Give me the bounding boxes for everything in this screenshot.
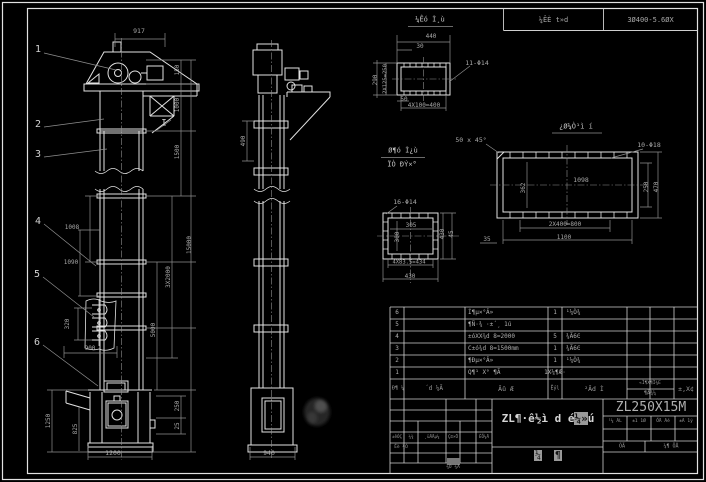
dim-label: 2X400=800 bbox=[549, 222, 582, 228]
header-power-cell: 3Ø400-5.6ØX bbox=[604, 9, 697, 31]
dim-label: 4X100=400 bbox=[408, 103, 441, 109]
bom-cell-no: 2 bbox=[395, 358, 399, 364]
bom-cell-qty: 5 bbox=[553, 334, 557, 340]
dim-label: 15000 bbox=[187, 236, 193, 254]
cad-drawing-sheet: ¼ÊÈ t»d 3Ø400-5.6ØX 123456I¼Êó Ì¸ùØ¶ó Ì¿… bbox=[0, 0, 706, 482]
dim-label: 250 bbox=[175, 401, 181, 412]
dim-label: ¼Ó ¼Ä bbox=[446, 466, 460, 471]
dim-label: 430 bbox=[405, 274, 416, 280]
dim-label: ¶Ä¾¼ bbox=[644, 392, 656, 397]
dim-label: ¼¶ ÖÅ bbox=[663, 445, 678, 450]
dim-label: ¼¾ bbox=[408, 435, 413, 439]
dim-label: ²Ãd Ì bbox=[584, 386, 604, 393]
bom-cell-material: ¾Ã6Ͼ bbox=[566, 334, 580, 340]
bom-cell-name: C±ó¾d 8=1500mm bbox=[468, 346, 519, 352]
product-title-tail: ú bbox=[588, 412, 595, 425]
bom-cell-qty: 1X¼¶Æ· bbox=[544, 370, 566, 376]
watermark-smudge bbox=[304, 398, 330, 426]
dim-label: 470 bbox=[654, 182, 660, 193]
product-title-main: ZL¶·ê½ì d é bbox=[502, 412, 575, 425]
dim-label: 1008 bbox=[65, 225, 79, 231]
bom-cell-name: ¶Ñ·¾ ·±´¸ 1ú bbox=[468, 322, 511, 328]
view-title-label: ÏÒ ĐÝ×° bbox=[387, 162, 417, 169]
dim-label: 825 bbox=[73, 424, 79, 435]
callout-label: 5 bbox=[34, 270, 40, 280]
dim-label: 1500 bbox=[175, 145, 181, 159]
drawing-linework bbox=[0, 0, 706, 482]
header-spec-cell: ¼ÊÈ t»d bbox=[504, 9, 603, 31]
sheet-type-label: ¼¶ bbox=[493, 450, 603, 461]
bom-cell-name: Q¶¹ X° ¶Ã bbox=[468, 370, 501, 376]
dim-label: 50 x 45° bbox=[455, 137, 486, 144]
bom-cell-qty: 1 bbox=[553, 346, 557, 352]
dim-label: ±1 1Ø bbox=[632, 420, 646, 425]
view-title-label: ¿Ø¼Ò¹ì í bbox=[559, 124, 593, 131]
dim-label: Éè ¼Ó bbox=[394, 446, 408, 451]
dim-label: 4X83.5=434 bbox=[392, 260, 425, 266]
dim-label: Đ¶ ¼ bbox=[392, 387, 404, 392]
dim-label: Ç©×Ö bbox=[448, 435, 458, 439]
dim-label: ÕÄ bbox=[619, 445, 625, 450]
dim-label: 320 bbox=[65, 319, 71, 330]
view-title-label: ¼Êó Ì¸ù bbox=[415, 17, 445, 24]
dim-label: 5000 bbox=[151, 323, 157, 337]
dim-label: 50 bbox=[400, 97, 407, 103]
dim-label: 1090 bbox=[64, 260, 78, 266]
dim-label: Ãû Æ bbox=[498, 386, 514, 393]
dim-label: 150 bbox=[175, 65, 181, 76]
dimension-lines bbox=[43, 27, 662, 461]
dim-label: 25 bbox=[175, 422, 181, 429]
bom-cell-qty: 1 bbox=[553, 358, 557, 364]
dim-label: Êýl bbox=[550, 387, 559, 392]
bom-cell-material: ¹¼Ò¾ bbox=[566, 310, 580, 316]
bom-cell-material: ¹¼Ò¾ bbox=[566, 358, 580, 364]
dim-label: ±êÓÇ bbox=[392, 435, 402, 439]
dim-label: 1200 bbox=[105, 450, 121, 457]
dim-label: «Ì¶X¶Ì¾E bbox=[639, 382, 661, 387]
dim-label: 362 bbox=[521, 183, 527, 194]
bom-cell-material: ¾Ã6Ͼ bbox=[566, 346, 580, 352]
dim-label: 1250 bbox=[46, 414, 52, 428]
product-title-highlight: ¼» bbox=[574, 412, 587, 425]
bom-cell-no: 4 bbox=[395, 334, 399, 340]
sheet-char-1: ¼ bbox=[534, 450, 542, 461]
product-title: ZL¶·ê½ì d é¼»ú bbox=[493, 412, 603, 426]
dim-label: 11-Φ14 bbox=[465, 60, 488, 67]
dim-label: ÕÄ Ãé bbox=[656, 420, 670, 425]
dim-label: ¹¼ ÃL bbox=[608, 420, 622, 425]
dim-label: 900 bbox=[85, 346, 96, 352]
dim-label: 940 bbox=[263, 450, 275, 457]
callout-label: I bbox=[161, 120, 166, 129]
bom-cell-no: 5 bbox=[395, 322, 399, 328]
callout-label: 1 bbox=[35, 45, 41, 55]
sheet-char-2: ¶ bbox=[554, 450, 562, 461]
dim-label: 917 bbox=[133, 28, 145, 35]
bom-cell-name: Í¶µ×°Â» bbox=[468, 310, 493, 316]
dim-label: 1000 bbox=[175, 98, 181, 112]
dim-label: 440 bbox=[426, 34, 437, 40]
bom-cell-name: ¶Ðµ×°Â» bbox=[468, 358, 493, 364]
callout-label: 4 bbox=[35, 217, 41, 227]
dim-label: 1098 bbox=[573, 177, 589, 184]
dim-label: 35 bbox=[483, 237, 490, 243]
dim-label: 290 bbox=[373, 75, 379, 86]
dim-label: 30 bbox=[416, 44, 423, 50]
bom-cell-name: ±óXX¾d 8=2000 bbox=[468, 334, 515, 340]
bom-cell-no: 6 bbox=[395, 310, 399, 316]
dim-label: ´d ¼Ã bbox=[425, 386, 443, 392]
bom-cell-no: 3 bbox=[395, 346, 399, 352]
dim-label: 305 bbox=[406, 223, 417, 229]
bom-cell-qty: 1 bbox=[553, 310, 557, 316]
dim-label: 490 bbox=[241, 136, 247, 147]
dim-label: ¸üÄÄμ¼ bbox=[424, 435, 439, 439]
view-title-label: Ø¶ó Ì¿ù bbox=[388, 148, 418, 155]
dim-label: 250 bbox=[644, 182, 650, 193]
bom-cell-no: 1 bbox=[395, 370, 399, 376]
dim-label: 3X2000 bbox=[166, 266, 172, 288]
dim-label: 300 bbox=[395, 232, 401, 243]
callout-label: 3 bbox=[35, 150, 41, 160]
dim-label: 430 bbox=[440, 229, 446, 240]
dim-label: 10-Φ18 bbox=[637, 142, 660, 149]
callout-label: 6 bbox=[34, 338, 40, 348]
dim-label: 45 bbox=[449, 230, 455, 237]
dim-label: 16-Φ14 bbox=[393, 199, 416, 206]
dim-label: 2X125=250 bbox=[383, 64, 389, 94]
callout-label: 2 bbox=[35, 120, 41, 130]
model-number: ZL250X15M bbox=[604, 400, 698, 416]
dim-label: ±Ã 1ý bbox=[679, 420, 693, 425]
dim-label: 1100 bbox=[557, 235, 571, 241]
dim-label: ÈÕ¼Ä bbox=[479, 435, 489, 439]
dim-label: ±,X¢ bbox=[678, 386, 694, 393]
